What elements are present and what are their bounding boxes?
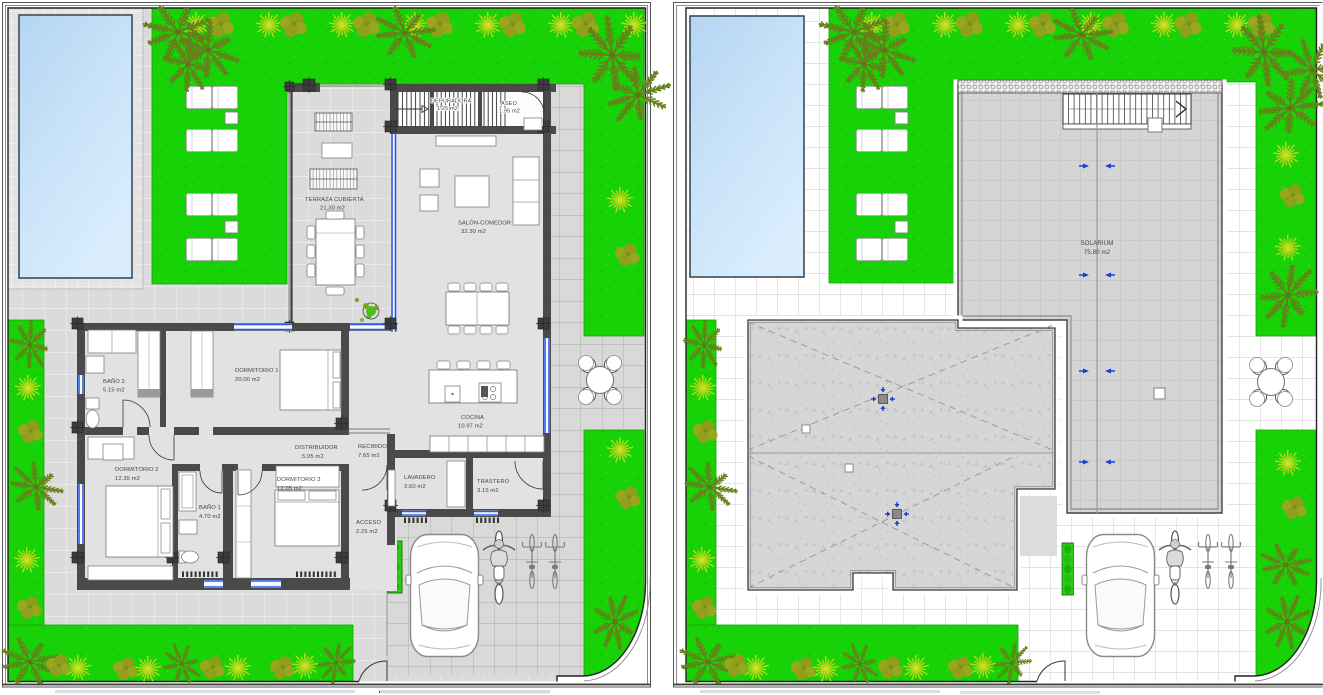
svg-text:TERRAZA CUBIERTA: TERRAZA CUBIERTA [305,197,364,203]
svg-text:ASEO: ASEO [501,101,517,107]
svg-text:12.35 m2: 12.35 m2 [115,476,140,482]
svg-text:7.65 m2: 7.65 m2 [358,453,380,459]
svg-text:DEPURADORA: DEPURADORA [431,99,472,105]
svg-text:TRASTERO: TRASTERO [477,479,510,485]
svg-text:5.15 m2: 5.15 m2 [103,388,125,394]
svg-text:DISTRIBUIDOR: DISTRIBUIDOR [295,445,338,451]
svg-text:BAÑO 2: BAÑO 2 [103,378,125,385]
svg-text:SOLARIUM: SOLARIUM [1080,240,1113,247]
svg-text:ACCESO: ACCESO [356,520,381,526]
svg-text:2.25 m2: 2.25 m2 [356,529,378,535]
svg-text:20.00 m2: 20.00 m2 [235,377,260,383]
svg-text:12.05 m2: 12.05 m2 [277,486,302,492]
svg-text:SALÓN-COMEDOR: SALÓN-COMEDOR [458,220,511,227]
svg-text:BAÑO 1: BAÑO 1 [199,504,221,511]
svg-text:75.80 m2: 75.80 m2 [1084,249,1111,256]
svg-text:1.95 m2: 1.95 m2 [499,109,520,115]
svg-text:DORMITORIO 2: DORMITORIO 2 [115,467,159,473]
svg-text:3.60 m2: 3.60 m2 [404,484,426,490]
svg-text:DORMITORIO 1: DORMITORIO 1 [235,368,279,374]
svg-text:32.30 m2: 32.30 m2 [461,229,486,235]
svg-text:3.15 m2: 3.15 m2 [477,488,499,494]
svg-text:LAVADERO: LAVADERO [404,475,436,481]
svg-text:5.05 m2: 5.05 m2 [302,454,324,460]
svg-text:RECIBIDOR: RECIBIDOR [358,444,391,450]
svg-text:4.70 m2: 4.70 m2 [199,514,221,520]
svg-text:10.97 m2: 10.97 m2 [458,424,483,430]
svg-text:COCINA: COCINA [461,415,484,421]
svg-text:DORMITORIO 3: DORMITORIO 3 [277,477,321,483]
svg-text:1.25 m2: 1.25 m2 [437,106,458,112]
